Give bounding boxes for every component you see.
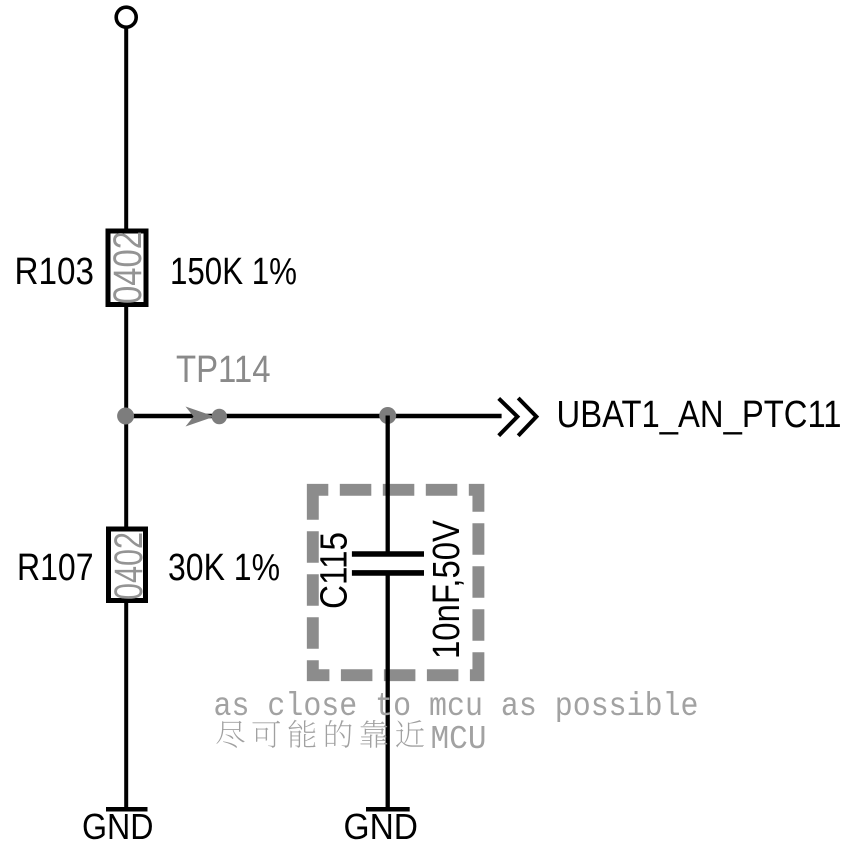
svg-text:as close to mcu as possible: as close to mcu as possible: [214, 688, 699, 725]
svg-text:C115: C115: [314, 532, 356, 609]
svg-text:10nF,50V: 10nF,50V: [426, 519, 468, 659]
svg-text:GND: GND: [344, 806, 419, 847]
svg-text:GND: GND: [82, 806, 154, 847]
svg-text:150K 1%: 150K 1%: [170, 251, 297, 293]
svg-text:TP114: TP114: [176, 349, 271, 391]
svg-text:0402: 0402: [107, 532, 151, 600]
svg-text:MCU: MCU: [431, 721, 487, 758]
svg-text:30K 1%: 30K 1%: [168, 547, 280, 589]
svg-text:R103: R103: [15, 251, 95, 293]
svg-text:UBAT1_AN_PTC11: UBAT1_AN_PTC11: [557, 394, 842, 436]
svg-text:R107: R107: [17, 547, 94, 589]
svg-text:0402: 0402: [106, 231, 150, 304]
